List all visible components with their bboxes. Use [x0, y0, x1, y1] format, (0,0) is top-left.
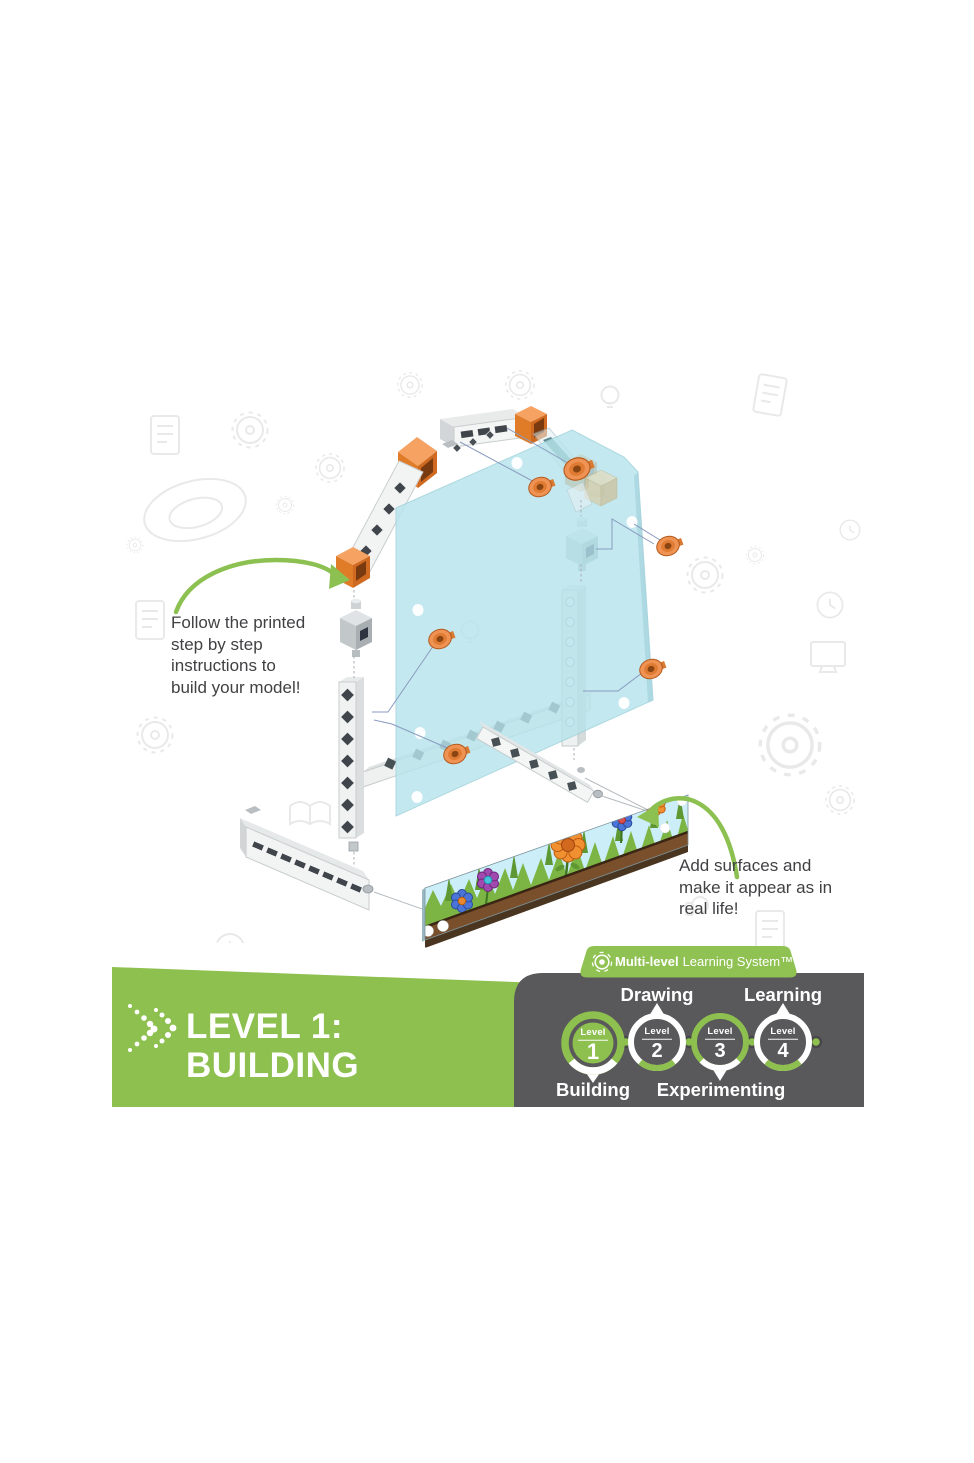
level-1-text: Level 1: [571, 1027, 615, 1062]
level-word: Level: [705, 1026, 734, 1040]
level-number: 2: [651, 1040, 662, 1060]
gray-connector-cube: [340, 599, 372, 657]
left-note-line: Follow the printed: [171, 612, 305, 634]
level-number: 1: [587, 1041, 599, 1061]
level-word: Level: [642, 1026, 671, 1040]
badge-rest-text: Learning System™: [683, 954, 794, 969]
badge-bold-text: Multi-level: [615, 954, 679, 969]
left-note-line: step by step: [171, 634, 305, 656]
left-post: [339, 677, 364, 851]
label-experimenting: Experimenting: [657, 1079, 786, 1101]
left-green-arrow: [176, 560, 350, 612]
top-beam: [440, 409, 527, 452]
small-connector: [577, 767, 585, 773]
banner-title: LEVEL 1: BUILDING: [186, 1007, 359, 1085]
level-number: 3: [714, 1040, 725, 1060]
level-3-text: Level 3: [698, 1026, 742, 1061]
level-word: Level: [768, 1026, 797, 1040]
right-note-line: make it appear as in: [679, 877, 832, 899]
label-building: Building: [556, 1079, 630, 1101]
banner-title-line2: BUILDING: [186, 1046, 359, 1085]
banner-title-line1: LEVEL 1:: [186, 1007, 359, 1046]
right-note-line: real life!: [679, 898, 832, 920]
illustration-canvas: [0, 0, 974, 1463]
level-2-text: Level 2: [635, 1026, 679, 1061]
label-learning: Learning: [744, 984, 822, 1006]
label-drawing: Drawing: [621, 984, 694, 1006]
left-note-line: build your model!: [171, 677, 305, 699]
level-4-text: Level 4: [761, 1026, 805, 1061]
right-note-line: Add surfaces and: [679, 855, 832, 877]
right-note: Add surfaces and make it appear as in re…: [679, 855, 832, 920]
left-note: Follow the printed step by step instruct…: [171, 612, 305, 698]
product-infographic-page: Follow the printed step by step instruct…: [0, 0, 974, 1463]
learning-system-badge-text: Multi-levelLearning System™: [615, 954, 793, 970]
level-number: 4: [777, 1040, 788, 1060]
left-note-line: instructions to: [171, 655, 305, 677]
